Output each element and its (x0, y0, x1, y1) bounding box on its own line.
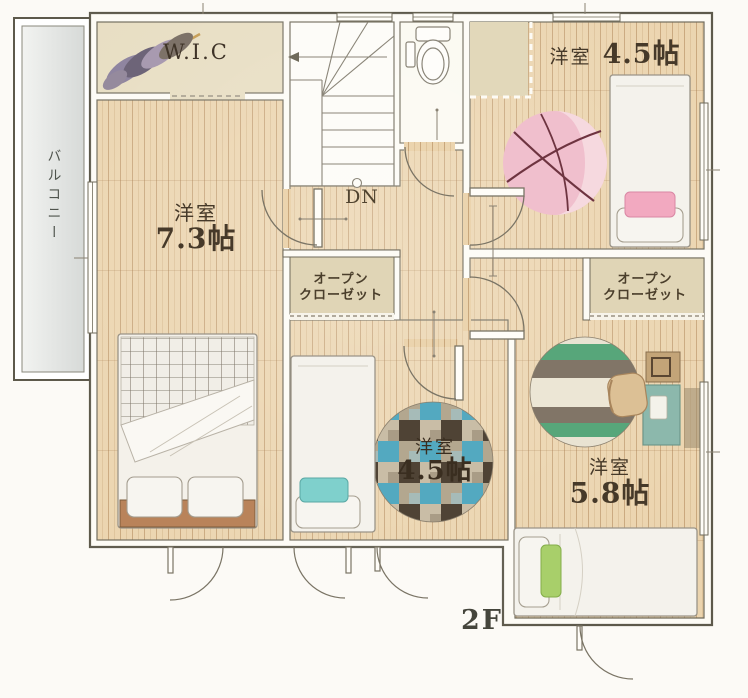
window-balcony (88, 182, 97, 333)
desk-chair (606, 372, 648, 419)
bedroom-73-type: 洋室 (156, 203, 237, 224)
bedroom-45-mid-label: 洋室 4.5帖 (397, 439, 472, 485)
bedroom-45-top-door-leaf (470, 188, 524, 196)
balcony-label: バルコニー (46, 149, 61, 244)
bedroom-73-label: 洋室 7.3帖 (156, 203, 237, 253)
bedroom-45-mid-size: 4.5帖 (397, 458, 472, 485)
open-closet-right-line2: クローゼット (603, 288, 687, 304)
bedroom-45-top-label: 洋室 4.5帖 (549, 41, 680, 69)
bedroom-45-top-size: 4.5帖 (603, 39, 681, 70)
window-toilet-top (413, 13, 453, 21)
floor-label: 2F (461, 607, 503, 635)
bedroom-58-door-leaf (470, 331, 524, 339)
double-bed (118, 334, 257, 528)
wic-label: W.I.C (163, 41, 229, 63)
window-stairs-top (337, 13, 392, 21)
floor-plan-page: バルコニー W.I.C 洋室 7.3帖 DN 洋室 4.5帖 オープン クローゼ… (0, 0, 748, 698)
bedroom-45-mid-door-leaf (455, 346, 463, 400)
window-58-right (700, 382, 708, 535)
bedroom-73-door-leaf (314, 189, 322, 247)
floor-plan-drawing (0, 0, 748, 698)
open-closet-center-label: オープン クローゼット (299, 272, 383, 305)
bedroom-45-top-type: 洋室 (549, 46, 591, 68)
pink-rug (503, 111, 607, 215)
single-bed-top (610, 75, 690, 247)
bedroom-73-size: 7.3帖 (156, 224, 237, 253)
single-bed-mid (291, 356, 375, 532)
open-closet-center-line2: クローゼット (299, 288, 383, 304)
open-closet-right-label: オープン クローゼット (603, 272, 687, 305)
window-45top-right (700, 103, 708, 240)
stairs-floor (290, 22, 394, 186)
window-45top-top (553, 13, 620, 21)
bedroom-58-type: 洋室 (570, 458, 651, 478)
single-bed-58 (514, 528, 697, 616)
bedroom-58-label: 洋室 5.8帖 (570, 458, 651, 507)
closet-strip-45top (470, 22, 531, 97)
open-closet-center-line1: オープン (299, 272, 383, 288)
open-closet-right-line1: オープン (603, 272, 687, 288)
stairs-dn-label: DN (345, 188, 379, 208)
bedroom-58-size: 5.8帖 (570, 478, 651, 507)
desk-side-shelf (684, 388, 702, 448)
